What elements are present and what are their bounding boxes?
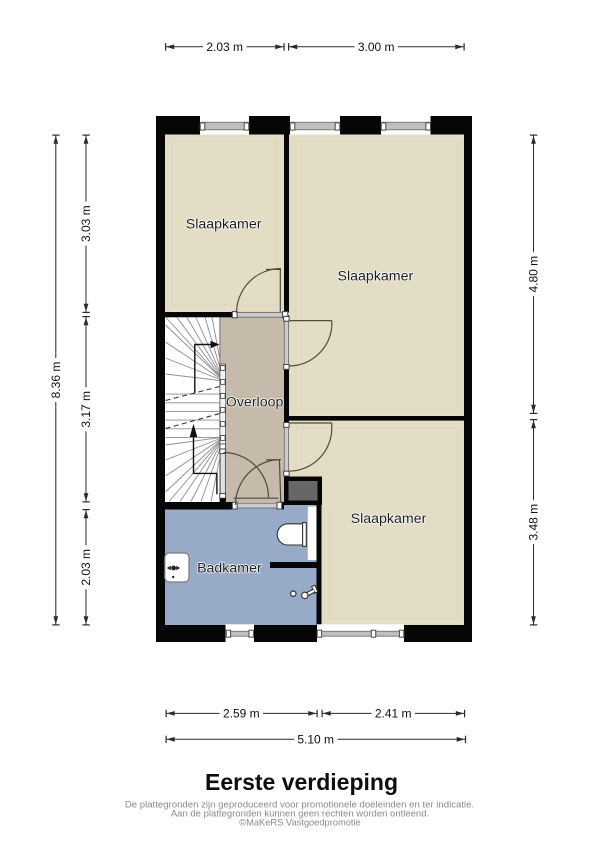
svg-text:8.36 m: 8.36 m	[49, 362, 63, 399]
svg-text:Overloop: Overloop	[226, 394, 284, 410]
svg-text:Slaapkamer: Slaapkamer	[338, 268, 414, 284]
svg-text:Slaapkamer: Slaapkamer	[351, 511, 427, 527]
svg-text:Eerste verdieping: Eerste verdieping	[205, 769, 398, 795]
svg-text:3.00 m: 3.00 m	[358, 40, 395, 54]
svg-text:2.59 m: 2.59 m	[223, 707, 260, 721]
svg-text:3.48 m: 3.48 m	[527, 504, 541, 541]
svg-text:Slaapkamer: Slaapkamer	[186, 216, 262, 232]
svg-text:2.03 m: 2.03 m	[79, 549, 93, 586]
svg-text:3.03 m: 3.03 m	[79, 205, 93, 242]
svg-text:Badkamer: Badkamer	[197, 560, 262, 576]
svg-text:2.03 m: 2.03 m	[206, 40, 243, 54]
svg-text:5.10 m: 5.10 m	[297, 733, 334, 747]
svg-text:©MaKeRS Vastgoedpromotie: ©MaKeRS Vastgoedpromotie	[239, 818, 360, 828]
svg-text:4.80 m: 4.80 m	[527, 256, 541, 293]
svg-text:2.41 m: 2.41 m	[375, 707, 412, 721]
svg-text:3.17 m: 3.17 m	[79, 391, 93, 428]
